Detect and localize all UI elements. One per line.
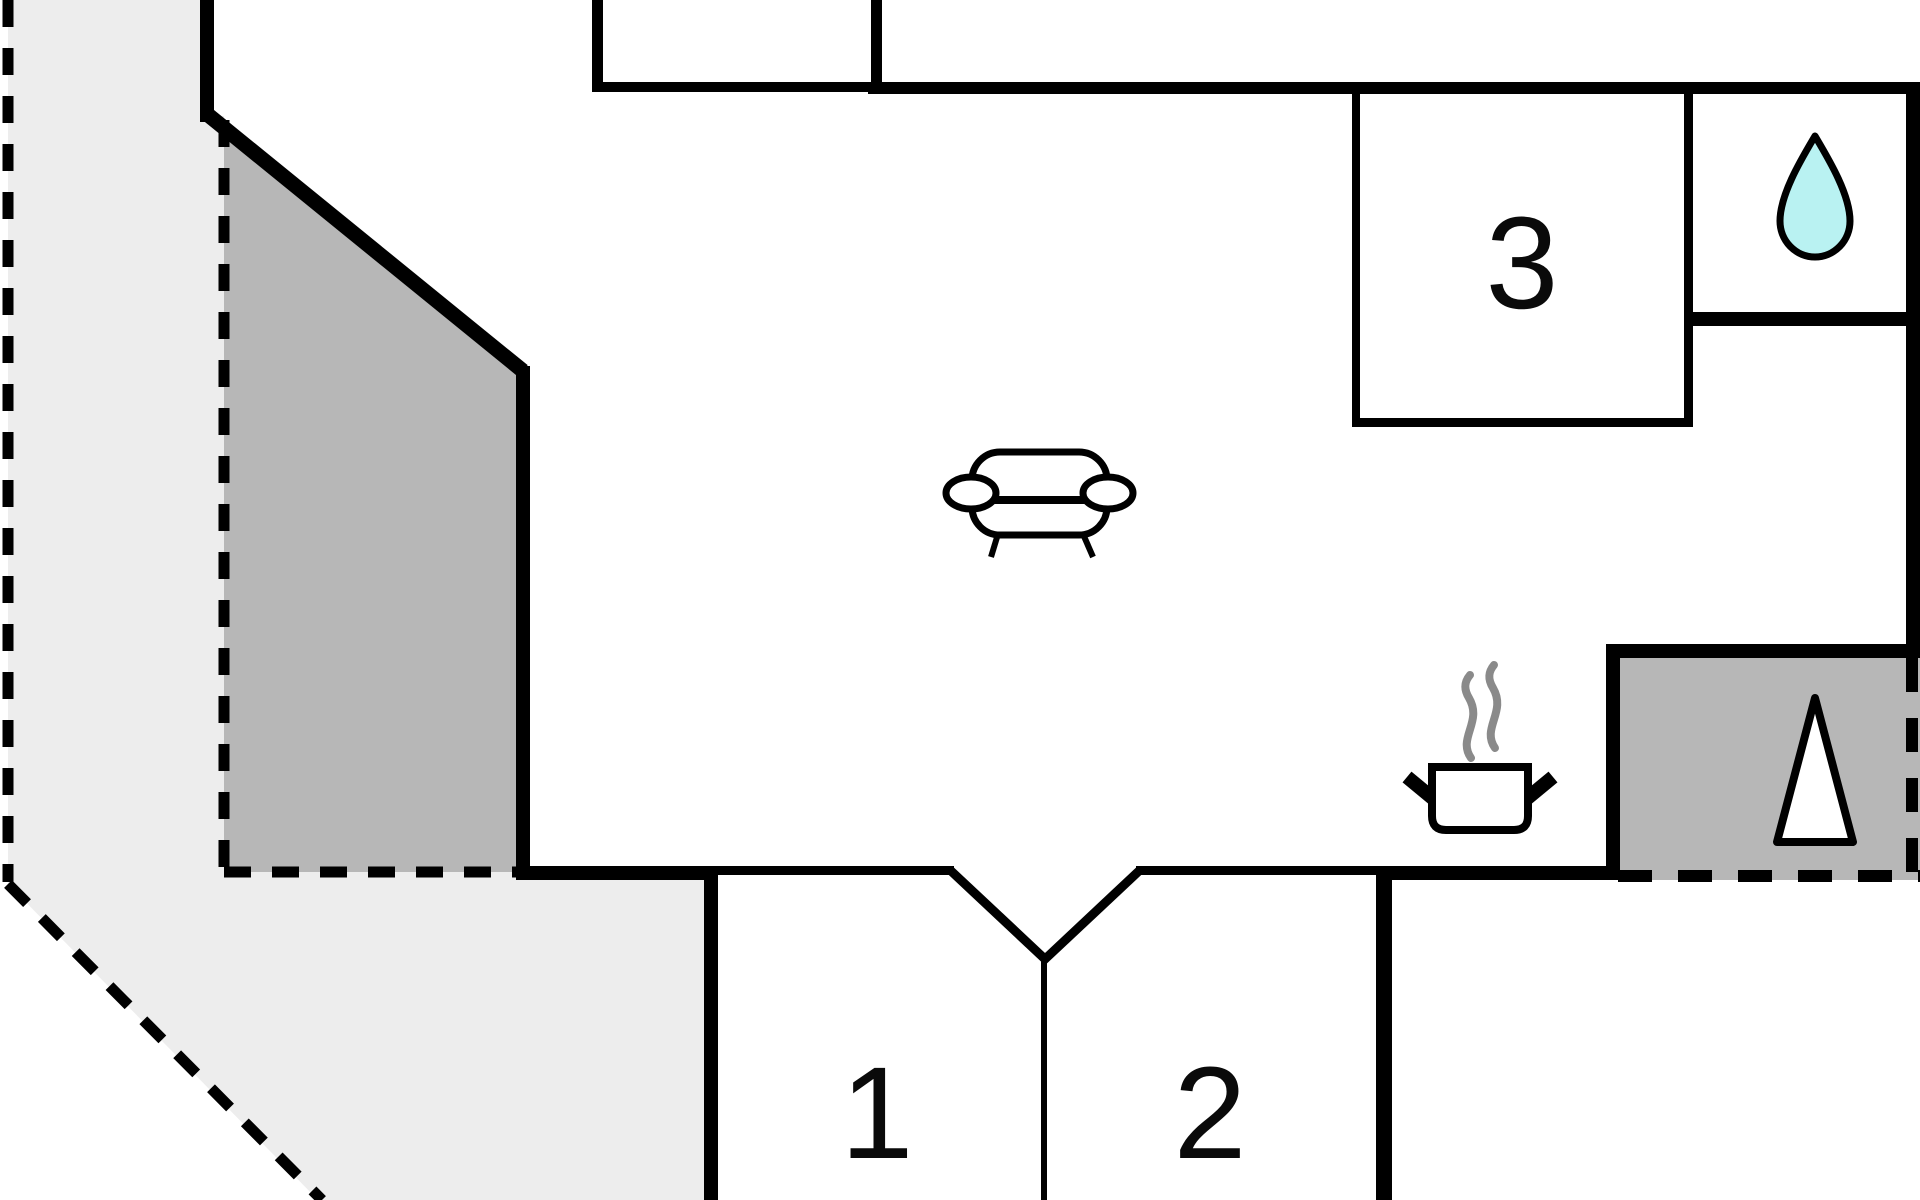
room-2-label: 2: [1174, 1039, 1247, 1186]
steam-icon: [1465, 665, 1497, 758]
sofa-icon: [946, 452, 1133, 557]
room-3-label: 3: [1486, 189, 1559, 336]
terrace-dark-area: [214, 112, 523, 872]
annex-dark-box: [1606, 646, 1920, 880]
water-drop-icon: [1780, 136, 1850, 257]
cooking-pot-icon: [1407, 767, 1553, 830]
floorplan-drawing: 1 2 3: [0, 0, 1920, 1200]
room-1-label: 1: [841, 1039, 914, 1186]
floorplan-page: 1 2 3: [0, 0, 1920, 1200]
